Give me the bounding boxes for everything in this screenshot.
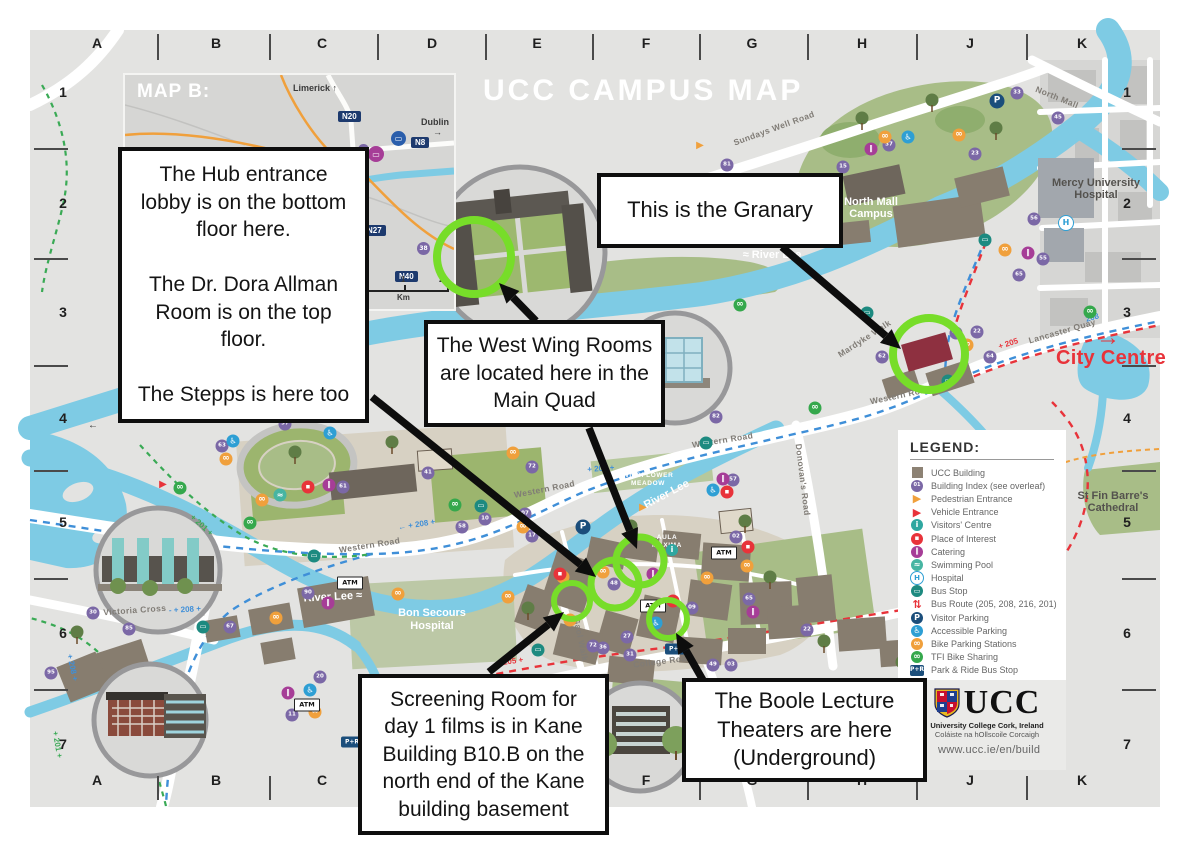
map-label: + 206 + xyxy=(587,463,615,474)
map-badge-bike: ∞ xyxy=(961,339,974,352)
map-badge-acc: ♿ xyxy=(902,131,915,144)
map-badge-bike: ∞ xyxy=(741,560,754,573)
map-badge-acc: ♿ xyxy=(304,684,317,697)
legend: LEGEND: UCC Building01Building Index (se… xyxy=(898,430,1066,680)
callout-line: This is the Granary xyxy=(601,196,839,225)
legend-item-place-of-interest: ▪Place of Interest xyxy=(910,532,1054,545)
legend-pedestrian-entrance-icon: ▶ xyxy=(911,493,923,505)
map-badge-cat: ‖ xyxy=(282,687,295,700)
map-badge-idx-02: 02 xyxy=(730,531,743,544)
map-badge-cat: ‖ xyxy=(717,473,730,486)
scale-label-2: 2 xyxy=(439,275,443,284)
footer-university-name: University College Cork, Ireland xyxy=(903,721,1071,730)
legend-item-pedestrian-entrance: ▶Pedestrian Entrance xyxy=(910,492,1054,505)
callout-line: The Hub entrance xyxy=(122,161,365,189)
grid-letter-top-G: G xyxy=(747,35,758,51)
grid-tick xyxy=(269,776,271,800)
callout-granary-note: This is the Granary xyxy=(597,173,843,248)
legend-item-bus-route: ⇅Bus Route (205, 208, 216, 201) xyxy=(910,598,1054,611)
map-label: Cathedral xyxy=(1088,502,1139,514)
legend-accessible-parking-icon: ♿ xyxy=(911,625,923,637)
legend-item-hospital: HHospital xyxy=(910,572,1054,585)
map-badge-atm: ATM xyxy=(294,699,320,712)
grid-letter-top-E: E xyxy=(532,35,541,51)
map-badge-acc: ♿ xyxy=(650,617,663,630)
legend-item-label: Visitor Parking xyxy=(931,613,989,623)
map-badge-tfi: ∞ xyxy=(809,402,822,415)
legend-tfi-bike-sharing-icon: ∞ xyxy=(911,651,923,663)
legend-item-label: Hospital xyxy=(931,573,964,583)
legend-item-label: Accessible Parking xyxy=(931,626,1007,636)
map-badge-bus: ▭ xyxy=(700,437,713,450)
map-badge-bike: ∞ xyxy=(953,129,966,142)
grid-tick xyxy=(1122,258,1156,260)
train-station-icon: ▭ xyxy=(391,131,406,146)
route-badge-n20: N20 xyxy=(338,111,361,122)
building-38-badge: 38 xyxy=(417,242,430,255)
map-badge-tri-o: ▶ xyxy=(694,140,706,152)
badge-38-arrow: → xyxy=(434,243,443,253)
legend-item-label: Vehicle Entrance xyxy=(931,507,999,517)
map-badge-cat: ‖ xyxy=(1022,247,1035,260)
callout-line: floor. xyxy=(122,326,365,354)
grid-tick xyxy=(1122,578,1156,580)
legend-item-label: UCC Building xyxy=(931,468,985,478)
map-badge-bike: ∞ xyxy=(879,131,892,144)
legend-item-label: Place of Interest xyxy=(931,534,996,544)
legend-hospital-iconwrap: H xyxy=(910,571,924,585)
map-badge-poi: ▪ xyxy=(302,481,315,494)
map-badge-idx-23: 23 xyxy=(969,148,982,161)
grid-number-right-7: 7 xyxy=(1123,736,1131,752)
grid-number-right-2: 2 xyxy=(1123,195,1131,211)
legend-item-swimming-pool: ≈Swimming Pool xyxy=(910,558,1054,571)
legend-catering-iconwrap: ‖ xyxy=(910,546,924,558)
grid-number-left-6: 6 xyxy=(59,625,67,641)
map-badge-bike: ∞ xyxy=(392,588,405,601)
legend-visitors-centre-icon: i xyxy=(911,519,923,531)
map-badge-tri-o: ▶ xyxy=(637,502,649,514)
bus-station-icon: ▭ xyxy=(368,146,384,162)
map-label: Mercy University xyxy=(1052,177,1141,189)
callout-line: The Boole Lecture xyxy=(686,687,923,716)
grid-letter-top-K: K xyxy=(1077,35,1087,51)
legend-item-label: TFI Bike Sharing xyxy=(931,652,998,662)
map-label: ← xyxy=(88,420,98,431)
grid-tick xyxy=(34,365,68,367)
legend-accessible-parking-iconwrap: ♿ xyxy=(910,625,924,637)
grid-number-right-6: 6 xyxy=(1123,625,1131,641)
map-badge-idx-22: 22 xyxy=(971,326,984,339)
callout-west-wing-note: The West Wing Roomsare located here in t… xyxy=(424,320,665,427)
legend-item-bus-stop: ▭Bus Stop xyxy=(910,585,1054,598)
grid-letter-bottom-B: B xyxy=(211,772,221,788)
grid-tick xyxy=(157,776,159,800)
grid-letter-top-D: D xyxy=(427,35,437,51)
legend-building-index-iconwrap: 01 xyxy=(910,480,924,492)
grid-tick xyxy=(34,689,68,691)
legend-item-building-index: 01Building Index (see overleaf) xyxy=(910,479,1054,492)
legend-item-tfi-bike-sharing: ∞TFI Bike Sharing xyxy=(910,651,1054,664)
grid-tick xyxy=(1026,776,1028,800)
grid-tick xyxy=(1122,689,1156,691)
legend-item-label: Bike Parking Stations xyxy=(931,639,1017,649)
map-badge-cat: ‖ xyxy=(865,143,878,156)
callout-line: floor here. xyxy=(122,216,365,244)
grid-letter-top-F: F xyxy=(642,35,651,51)
map-badge-acc: ♿ xyxy=(707,484,720,497)
legend-bike-parking-icon: ∞ xyxy=(911,638,923,650)
legend-visitor-parking-icon: P xyxy=(911,612,923,624)
map-badge-idx-49: 49 xyxy=(707,659,720,672)
map-badge-idx-41: 41 xyxy=(422,467,435,480)
map-badge-tri-r: ▶ xyxy=(157,479,169,491)
grid-tick xyxy=(34,258,68,260)
map-label: WILDFLOWER xyxy=(623,472,674,479)
map-badge-bike: ∞ xyxy=(597,566,610,579)
map-badge-idx-09: 09 xyxy=(686,602,699,615)
grid-number-left-4: 4 xyxy=(59,410,67,426)
map-badge-bus: ▭ xyxy=(942,375,955,388)
grid-letter-top-H: H xyxy=(857,35,867,51)
map-badge-idx-65: 65 xyxy=(1013,269,1026,282)
legend-item-label: Visitors' Centre xyxy=(931,520,992,530)
map-badge-acc: ♿ xyxy=(324,427,337,440)
map-badge-bus: ▭ xyxy=(532,644,545,657)
callout-line: The Stepps is here too xyxy=(122,381,365,409)
legend-vehicle-entrance-iconwrap: ▶ xyxy=(910,506,924,518)
map-label: ≈ River Lee xyxy=(743,249,802,261)
map-badge-bike: ∞ xyxy=(270,612,283,625)
map-badge-atm: ATM xyxy=(640,600,666,613)
ucc-footer: UCC University College Cork, Ireland Col… xyxy=(903,688,1071,739)
legend-park-ride-iconwrap: P+R xyxy=(910,665,924,676)
legend-hospital-icon: H xyxy=(910,571,924,585)
map-badge-pr: P+R xyxy=(665,644,687,655)
legend-item-vehicle-entrance: ▶Vehicle Entrance xyxy=(910,506,1054,519)
grid-tick xyxy=(699,34,701,60)
legend-item-label: Bus Stop xyxy=(931,586,968,596)
map-label: Hospital xyxy=(410,620,453,632)
main-quad-illustration-circle xyxy=(435,167,605,337)
map-badge-idx-72: 72 xyxy=(587,640,600,653)
callout-line: The West Wing Rooms xyxy=(428,332,661,360)
map-badge-atm: ATM xyxy=(337,577,363,590)
map-badge-idx-30: 30 xyxy=(87,607,100,620)
grid-number-left-1: 1 xyxy=(59,84,67,100)
grid-letter-bottom-J: J xyxy=(966,772,974,788)
map-badge-bike: ∞ xyxy=(220,453,233,466)
map-badge-idx-85: 85 xyxy=(123,623,136,636)
map-badge-tfi: ∞ xyxy=(734,299,747,312)
map-badge-park: P xyxy=(990,94,1005,109)
city-centre-label: → City Centre xyxy=(1056,328,1160,370)
map-label: St Fin Barre's xyxy=(1077,490,1148,502)
legend-item-accessible-parking: ♿Accessible Parking xyxy=(910,624,1054,637)
city-centre-arrow: → xyxy=(1056,328,1160,347)
legend-item-bike-parking: ∞Bike Parking Stations xyxy=(910,637,1054,650)
map-badge-bus: ▭ xyxy=(197,621,210,634)
map-badge-bike: ∞ xyxy=(999,244,1012,257)
map-label: Hospital xyxy=(1074,189,1117,201)
map-badge-bus: ▭ xyxy=(308,550,321,563)
legend-swimming-pool-iconwrap: ≈ xyxy=(910,559,924,571)
legend-place-of-interest-iconwrap: ▪ xyxy=(910,533,924,545)
footer-url: www.ucc.ie/en/build xyxy=(938,744,1040,756)
legend-bus-route-iconwrap: ⇅ xyxy=(910,598,924,610)
map-badge-idx-56: 56 xyxy=(1028,213,1041,226)
map-badge-idx-95: 95 xyxy=(45,667,58,680)
legend-title: LEGEND: xyxy=(910,439,1054,460)
map-badge-tfi: ∞ xyxy=(174,482,187,495)
map-badge-bus: ▭ xyxy=(861,307,874,320)
grid-tick xyxy=(377,34,379,60)
limerick-label: Limerick ↑ xyxy=(293,83,337,93)
map-label: - + 208 + xyxy=(169,604,202,615)
callout-line: Building B10.B on the xyxy=(362,741,605,769)
footer-university-name-irish: Coláiste na hOllscoile Corcaigh xyxy=(903,730,1071,739)
map-badge-info: i xyxy=(666,544,678,556)
ucc-logo-text: UCC xyxy=(964,688,1041,719)
map-badge-idx-03: 03 xyxy=(725,659,738,672)
map-badge-idx-20: 20 xyxy=(314,671,327,684)
map-badge-idx-61: 61 xyxy=(337,481,350,494)
route-badge-n40: N40 xyxy=(395,271,418,282)
map-badge-idx-31: 31 xyxy=(624,649,637,662)
map-badge-idx-82: 82 xyxy=(710,411,723,424)
grid-tick xyxy=(34,470,68,472)
map-badge-idx-55: 55 xyxy=(1037,253,1050,266)
scale-label-1: 1 xyxy=(401,275,405,284)
callout-line: building basement xyxy=(362,796,605,824)
map-badge-bus: ▭ xyxy=(979,234,992,247)
callout-line: north end of the Kane xyxy=(362,768,605,796)
map-badge-idx-15: 15 xyxy=(837,161,850,174)
map-badge-idx-81: 81 xyxy=(721,159,734,172)
grid-tick xyxy=(485,34,487,60)
grid-letter-top-C: C xyxy=(317,35,327,51)
map-badge-hosp: H xyxy=(1058,215,1074,231)
grid-number-right-5: 5 xyxy=(1123,514,1131,530)
legend-swimming-pool-icon: ≈ xyxy=(911,559,923,571)
grid-tick xyxy=(1122,148,1156,150)
map-badge-idx-72: 72 xyxy=(526,461,539,474)
legend-item-label: Swimming Pool xyxy=(931,560,993,570)
map-badge-poi: ▪ xyxy=(554,568,567,581)
map-b-label: MAP B: xyxy=(137,81,210,103)
legend-item-visitors-centre: iVisitors' Centre xyxy=(910,519,1054,532)
map-badge-tfi: ∞ xyxy=(244,517,257,530)
grid-tick xyxy=(807,34,809,60)
legend-bike-parking-iconwrap: ∞ xyxy=(910,638,924,650)
map-badge-idx-10: 10 xyxy=(479,513,492,526)
grid-letter-top-J: J xyxy=(966,35,974,51)
legend-item-park-ride: P+RPark & Ride Bus Stop xyxy=(910,664,1054,677)
legend-items: UCC Building01Building Index (see overle… xyxy=(910,466,1054,677)
dublin-arrow: → xyxy=(433,127,442,137)
map-badge-idx-67: 67 xyxy=(224,621,237,634)
grid-letter-bottom-K: K xyxy=(1077,772,1087,788)
callout-boole-note: The Boole LectureTheaters are here(Under… xyxy=(682,678,927,782)
scale-bar-mid-tick xyxy=(404,285,406,290)
map-badge-bike: ∞ xyxy=(701,572,714,585)
map-label: Bon Secours xyxy=(398,607,466,619)
map-badge-idx-62: 62 xyxy=(876,351,889,364)
legend-visitors-centre-iconwrap: i xyxy=(910,519,924,531)
ucc-campus-map-screenshot: Sundays Well RoadNorth MallMercy Univers… xyxy=(0,0,1190,841)
grid-tick xyxy=(269,34,271,60)
legend-place-of-interest-icon: ▪ xyxy=(911,533,923,545)
map-badge-idx-07: 07 xyxy=(519,508,532,521)
callout-line: Room is on the top xyxy=(122,299,365,327)
grid-tick xyxy=(916,34,918,60)
map-badge-bike: ∞ xyxy=(507,447,520,460)
ucc-crest-icon xyxy=(934,688,960,718)
map-badge-park: P xyxy=(576,520,591,535)
grid-number-right-3: 3 xyxy=(1123,304,1131,320)
grid-letter-bottom-A: A xyxy=(92,772,102,788)
legend-vehicle-entrance-icon: ▶ xyxy=(911,506,923,518)
map-badge-acc: ♿ xyxy=(227,435,240,448)
legend-item-label: Catering xyxy=(931,547,965,557)
grid-tick xyxy=(34,578,68,580)
legend-item-label: Park & Ride Bus Stop xyxy=(931,665,1018,675)
legend-item-label: Building Index (see overleaf) xyxy=(931,481,1045,491)
grid-tick xyxy=(157,34,159,60)
grid-number-left-5: 5 xyxy=(59,514,67,530)
scale-bar xyxy=(365,285,449,292)
grid-letter-top-A: A xyxy=(92,35,102,51)
map-badge-bike: ∞ xyxy=(517,521,530,534)
legend-ucc-building-icon xyxy=(912,467,923,478)
legend-item-label: Pedestrian Entrance xyxy=(931,494,1013,504)
legend-bus-stop-icon: ▭ xyxy=(911,585,923,597)
callout-line: The Dr. Dora Allman xyxy=(122,271,365,299)
route-badge-n8: N8 xyxy=(411,137,429,148)
map-badge-idx-65: 65 xyxy=(743,593,756,606)
legend-building-index-icon: 01 xyxy=(911,480,923,492)
callout-line xyxy=(122,354,365,382)
grid-tick xyxy=(34,148,68,150)
grid-tick xyxy=(1026,34,1028,60)
map-badge-cat: ‖ xyxy=(323,479,336,492)
grid-letter-bottom-F: F xyxy=(642,772,651,788)
map-badge-poi: ▪ xyxy=(742,541,755,554)
map-badge-idx-45: 45 xyxy=(1052,112,1065,125)
map-badge-bike: ∞ xyxy=(564,614,577,627)
callout-hub-note: The Hub entrancelobby is on the bottomfl… xyxy=(118,147,369,423)
callout-line: Main Quad xyxy=(428,387,661,415)
callout-line: lobby is on the bottom xyxy=(122,189,365,217)
legend-bus-stop-iconwrap: ▭ xyxy=(910,585,924,597)
map-badge-cat: ‖ xyxy=(647,568,660,581)
map-badge-idx-90: 90 xyxy=(302,587,315,600)
legend-tfi-bike-sharing-iconwrap: ∞ xyxy=(910,651,924,663)
callout-line: Theaters are here xyxy=(686,716,923,745)
map-badge-idx-33: 33 xyxy=(1011,87,1024,100)
map-badge-idx-48: 48 xyxy=(608,578,621,591)
legend-ucc-building-iconwrap xyxy=(910,467,924,478)
grid-number-right-1: 1 xyxy=(1123,84,1131,100)
map-badge-idx-27: 27 xyxy=(621,631,634,644)
callout-line: Screening Room for xyxy=(362,686,605,714)
grid-letter-top-B: B xyxy=(211,35,221,51)
grid-number-left-7: 7 xyxy=(59,736,67,752)
legend-item-label: Bus Route (205, 208, 216, 201) xyxy=(931,599,1057,609)
callout-line xyxy=(122,244,365,272)
map-badge-cat: ‖ xyxy=(322,597,335,610)
map-badge-idx-64: 64 xyxy=(984,351,997,364)
map-badge-bus: ▭ xyxy=(475,500,488,513)
map-badge-idx-58: 58 xyxy=(456,521,469,534)
map-badge-idx-22: 22 xyxy=(801,624,814,637)
city-centre-text: City Centre xyxy=(1056,347,1160,370)
callout-screening-note: Screening Room forday 1 films is in Kane… xyxy=(358,674,609,835)
map-label: North Mall xyxy=(844,196,898,208)
grid-number-right-4: 4 xyxy=(1123,410,1131,426)
callout-line: (Underground) xyxy=(686,744,923,773)
callout-line: are located here in the xyxy=(428,360,661,388)
map-badge-bike: ∞ xyxy=(502,591,515,604)
map-badge-tfi: ∞ xyxy=(449,499,462,512)
grid-tick xyxy=(1122,470,1156,472)
scale-unit-label: Km xyxy=(397,293,410,302)
map-label: MEADOW xyxy=(631,480,665,487)
legend-item-ucc-building: UCC Building xyxy=(910,466,1054,479)
dublin-label: Dublin xyxy=(421,117,449,127)
brick-building-illustration-circle xyxy=(94,664,206,776)
legend-item-visitor-parking: PVisitor Parking xyxy=(910,611,1054,624)
legend-item-catering: ‖Catering xyxy=(910,545,1054,558)
map-badge-bike: ∞ xyxy=(256,494,269,507)
map-badge-tfi: ∞ xyxy=(1084,306,1097,319)
map-badge-poi: ▪ xyxy=(721,486,734,499)
grid-letter-bottom-C: C xyxy=(317,772,327,788)
map-badge-idx-44: 44 xyxy=(950,327,963,340)
map-label: Campus xyxy=(849,208,892,220)
grid-number-left-3: 3 xyxy=(59,304,67,320)
map-label: AULA xyxy=(657,534,677,541)
legend-bus-route-icon: ⇅ xyxy=(911,598,923,610)
legend-pedestrian-entrance-iconwrap: ▶ xyxy=(910,493,924,505)
grid-tick xyxy=(592,34,594,60)
legend-visitor-parking-iconwrap: P xyxy=(910,612,924,624)
grid-number-left-2: 2 xyxy=(59,195,67,211)
map-badge-swim: ≈ xyxy=(274,489,287,502)
map-title: UCC CAMPUS MAP xyxy=(483,74,803,108)
legend-catering-icon: ‖ xyxy=(911,546,923,558)
map-badge-atm: ATM xyxy=(711,547,737,560)
callout-line: day 1 films is in Kane xyxy=(362,713,605,741)
map-badge-poi: ▪ xyxy=(667,595,680,608)
legend-park-ride-icon: P+R xyxy=(910,665,924,676)
map-badge-cat: ‖ xyxy=(747,606,760,619)
